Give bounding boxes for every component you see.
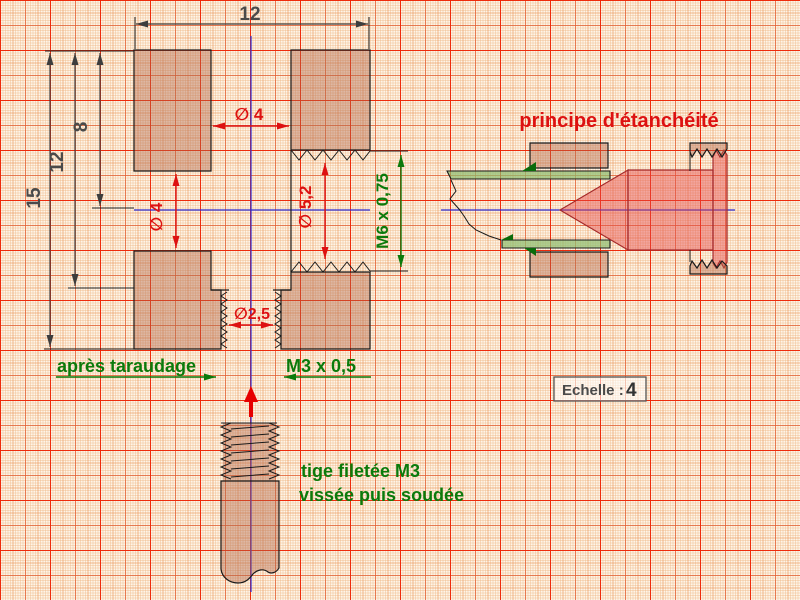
seal-strip-top [447, 171, 610, 179]
dia-side-hole-label: ∅ 4 [147, 202, 166, 231]
thread-teeth-m6-top [291, 150, 370, 160]
seal-wedge-top [522, 162, 536, 171]
dim-overall-width-label: 12 [239, 4, 260, 25]
seal-body-bottom [530, 252, 608, 277]
material-section-bottom-left [134, 251, 221, 349]
material-section-top-left [134, 50, 211, 171]
dim-overall-height-label: 15 [24, 187, 45, 209]
dia-bottom-hole-label: ∅2,5 [234, 306, 270, 323]
rod-note-line2: vissée puis soudée [299, 485, 464, 505]
millimeter-graph-paper: 12 15 12 8 ∅ 4 ∅ 4 ∅ 5,2 ∅2,5 M6 x 0,75 … [0, 0, 800, 600]
thread-teeth-m3-right [275, 292, 281, 348]
threaded-rod [221, 386, 279, 583]
scale-label: Echelle : [562, 382, 624, 399]
rod-shank [221, 481, 279, 583]
thread-side-label: M6 x 0,75 [373, 173, 392, 249]
scale-box: Echelle : 4 [554, 377, 646, 401]
technical-drawing: 12 15 12 8 ∅ 4 ∅ 4 ∅ 5,2 ∅2,5 M6 x 0,75 … [0, 0, 800, 600]
wall-broken-bottom [690, 260, 727, 274]
up-arrow-icon [244, 386, 258, 402]
seal-wedge-middle [501, 234, 513, 240]
wall-broken-top [690, 143, 727, 157]
dim-bore-depth-label: 12 [47, 151, 68, 172]
up-arrow-shaft [249, 400, 253, 417]
screw-body [628, 170, 713, 250]
section-view [134, 50, 370, 349]
seal-strip-bottom [502, 240, 610, 248]
material-section-top-right [291, 50, 370, 150]
dia-top-bore-label: ∅ 4 [235, 105, 264, 124]
scale-value: 4 [626, 380, 637, 401]
seal-view-title: principe d'étanchéité [519, 110, 718, 132]
seal-view: principe d'étanchéité [447, 110, 727, 277]
rod-note-line1: tige filetée M3 [301, 461, 420, 481]
material-section-bottom-right [281, 272, 370, 349]
tapping-note-label: après taraudage [57, 356, 196, 376]
thread-teeth-m3-left [221, 292, 227, 348]
dia-tapping-hole-label: ∅ 5,2 [296, 186, 315, 229]
seal-body-top [530, 143, 608, 168]
screw-cone-tip [560, 170, 628, 250]
thread-teeth-m6-bottom [291, 262, 370, 272]
dim-axis-height-label: 8 [71, 122, 92, 133]
thread-bottom-label: M3 x 0,5 [286, 356, 356, 376]
screw-shank-broken [713, 150, 727, 268]
